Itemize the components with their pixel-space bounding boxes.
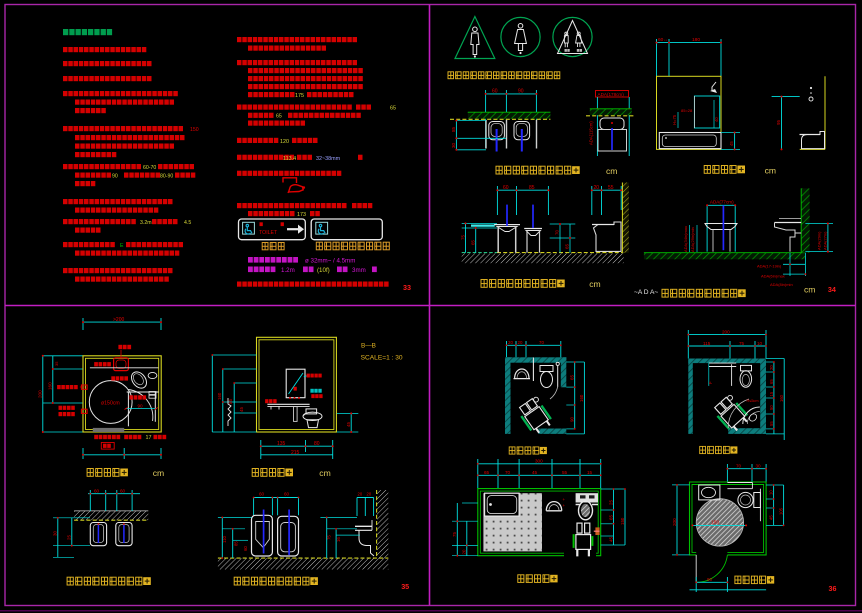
- svg-text:65: 65: [565, 244, 570, 249]
- svg-text:60: 60: [259, 491, 265, 496]
- svg-text:90: 90: [518, 89, 524, 95]
- svg-text:cm: cm: [319, 468, 330, 478]
- svg-text:60: 60: [120, 489, 126, 494]
- svg-text:~A D A~: ~A D A~: [634, 289, 658, 296]
- svg-text:ADA(17-19in): ADA(17-19in): [757, 264, 782, 269]
- svg-text:150: 150: [620, 517, 625, 525]
- svg-text:50: 50: [769, 405, 774, 410]
- svg-text:200: 200: [722, 329, 730, 334]
- svg-text:30: 30: [451, 142, 456, 148]
- svg-text:20: 20: [367, 491, 372, 496]
- svg-text:75: 75: [327, 535, 332, 540]
- svg-text:70: 70: [736, 464, 742, 469]
- svg-text:20: 20: [508, 340, 513, 345]
- svg-text:60: 60: [492, 89, 498, 95]
- svg-text:ADA(8in)min: ADA(8in)min: [770, 282, 793, 287]
- svg-text:80-90: 80-90: [160, 174, 173, 180]
- svg-text:(10f): (10f): [317, 267, 330, 274]
- svg-text:60-70: 60-70: [143, 165, 156, 171]
- svg-text:45: 45: [532, 470, 538, 475]
- svg-text:113.4: 113.4: [283, 156, 296, 162]
- svg-text:110: 110: [222, 536, 227, 543]
- svg-text:200: 200: [672, 518, 677, 526]
- svg-text:55: 55: [608, 185, 614, 191]
- svg-text:40: 40: [714, 117, 719, 122]
- svg-text:ADA(6in)max: ADA(6in)max: [761, 273, 785, 278]
- svg-text:F: F: [708, 381, 713, 384]
- svg-text:105: 105: [778, 507, 783, 515]
- svg-text:TOILET: TOILET: [259, 230, 278, 236]
- svg-text:15: 15: [587, 470, 593, 475]
- svg-text:85: 85: [529, 185, 535, 191]
- svg-text:20: 20: [518, 340, 523, 345]
- svg-text:45: 45: [346, 422, 351, 427]
- svg-text:215: 215: [291, 450, 300, 456]
- svg-text:ADA(34in)max: ADA(34in)max: [683, 226, 688, 252]
- svg-text:150: 150: [711, 520, 719, 526]
- svg-text:H=75: H=75: [672, 114, 677, 125]
- svg-text:ADA(77cm): ADA(77cm): [710, 200, 734, 205]
- svg-text:20: 20: [462, 549, 467, 554]
- svg-text:70: 70: [539, 340, 544, 345]
- svg-text:ADA(178cm): ADA(178cm): [598, 92, 625, 97]
- svg-text:150: 150: [190, 127, 199, 133]
- svg-text:45: 45: [239, 407, 244, 412]
- svg-text:cm: cm: [804, 285, 815, 295]
- svg-text:65: 65: [570, 375, 575, 380]
- svg-text:300: 300: [535, 459, 543, 464]
- svg-text:34: 34: [828, 285, 836, 294]
- svg-text:65: 65: [471, 240, 476, 245]
- svg-text:>200: >200: [113, 317, 124, 323]
- svg-text:SCALE=1 : 30: SCALE=1 : 30: [361, 355, 403, 362]
- svg-text:20: 20: [358, 491, 363, 496]
- svg-text:30: 30: [53, 531, 58, 536]
- svg-text:85: 85: [228, 399, 233, 404]
- svg-text:4.5: 4.5: [184, 220, 191, 226]
- svg-text:cm: cm: [606, 166, 617, 176]
- svg-text:R≤5cm: R≤5cm: [747, 399, 759, 403]
- svg-text:1.2m: 1.2m: [281, 267, 295, 274]
- svg-text:75: 75: [739, 341, 745, 346]
- svg-text:80: 80: [314, 441, 320, 447]
- svg-text:120: 120: [280, 139, 289, 145]
- svg-text:ø 32mm~ / 4.5mm: ø 32mm~ / 4.5mm: [305, 258, 355, 265]
- svg-text:ADA(115cm): ADA(115cm): [589, 121, 594, 145]
- svg-text:20: 20: [769, 365, 774, 370]
- svg-text:ø150cm: ø150cm: [101, 400, 120, 406]
- svg-text:160: 160: [579, 394, 584, 402]
- svg-text:115: 115: [703, 341, 711, 346]
- svg-text:70: 70: [505, 470, 511, 475]
- svg-text:32~38mm: 32~38mm: [316, 156, 341, 162]
- svg-text:+: +: [563, 497, 566, 502]
- svg-text:45: 45: [608, 537, 613, 542]
- svg-text:ADA(29in): ADA(29in): [817, 231, 822, 250]
- svg-text:55: 55: [562, 470, 568, 475]
- svg-text:160: 160: [217, 392, 222, 400]
- svg-text:70: 70: [555, 230, 560, 235]
- svg-text:60: 60: [94, 489, 100, 494]
- svg-text:+: +: [563, 503, 566, 508]
- svg-text:65: 65: [276, 114, 282, 120]
- svg-text:85: 85: [451, 126, 456, 132]
- svg-text:60: 60: [284, 491, 290, 496]
- svg-text:35: 35: [54, 361, 59, 366]
- svg-text:65: 65: [769, 379, 774, 384]
- svg-text:cm: cm: [153, 468, 164, 478]
- svg-text:173: 173: [297, 212, 306, 218]
- svg-text:45: 45: [768, 515, 773, 520]
- svg-text:65: 65: [608, 515, 613, 520]
- svg-text:33: 33: [403, 283, 411, 292]
- svg-text:60: 60: [243, 546, 248, 551]
- svg-text:35: 35: [401, 582, 409, 591]
- svg-text:65: 65: [484, 470, 490, 475]
- svg-text:90: 90: [138, 404, 144, 409]
- svg-text:55: 55: [769, 421, 774, 426]
- svg-text:175: 175: [295, 93, 304, 99]
- svg-text:15: 15: [769, 391, 774, 396]
- svg-text:ADA(29in)min: ADA(29in)min: [690, 227, 695, 252]
- svg-text:3.2m: 3.2m: [140, 220, 152, 226]
- svg-text:85=28: 85=28: [681, 108, 693, 113]
- svg-text:17: 17: [146, 435, 152, 441]
- svg-text:3mm: 3mm: [352, 267, 366, 274]
- svg-text:180: 180: [692, 37, 700, 43]
- svg-text:75: 75: [452, 532, 457, 537]
- svg-text:75: 75: [461, 235, 466, 240]
- svg-text:B—B: B—B: [361, 343, 376, 350]
- svg-text:10: 10: [768, 490, 773, 495]
- svg-text:200: 200: [38, 390, 43, 398]
- svg-text:160: 160: [48, 382, 53, 390]
- svg-text:95: 95: [776, 120, 781, 125]
- svg-text:60↔: 60↔: [658, 37, 668, 43]
- svg-text:135: 135: [277, 441, 286, 447]
- svg-text:20: 20: [594, 185, 600, 191]
- svg-text:cm: cm: [765, 166, 776, 176]
- svg-text:30: 30: [756, 464, 762, 469]
- svg-text:ADA(27in): ADA(27in): [823, 231, 828, 250]
- svg-text:90: 90: [112, 174, 118, 180]
- svg-text:36: 36: [829, 584, 837, 593]
- svg-text:60: 60: [503, 185, 509, 191]
- svg-text:65: 65: [390, 106, 396, 112]
- svg-text:45: 45: [729, 141, 734, 146]
- svg-text:25: 25: [608, 500, 613, 505]
- svg-text:16: 16: [336, 537, 341, 542]
- svg-text:160: 160: [779, 394, 784, 402]
- svg-text:90: 90: [570, 417, 575, 422]
- svg-text:cm: cm: [589, 279, 600, 289]
- svg-text:90: 90: [707, 577, 713, 582]
- svg-text:10: 10: [757, 341, 763, 346]
- svg-text:E: E: [120, 243, 124, 249]
- svg-text:85: 85: [234, 541, 239, 546]
- svg-text:25: 25: [67, 535, 72, 540]
